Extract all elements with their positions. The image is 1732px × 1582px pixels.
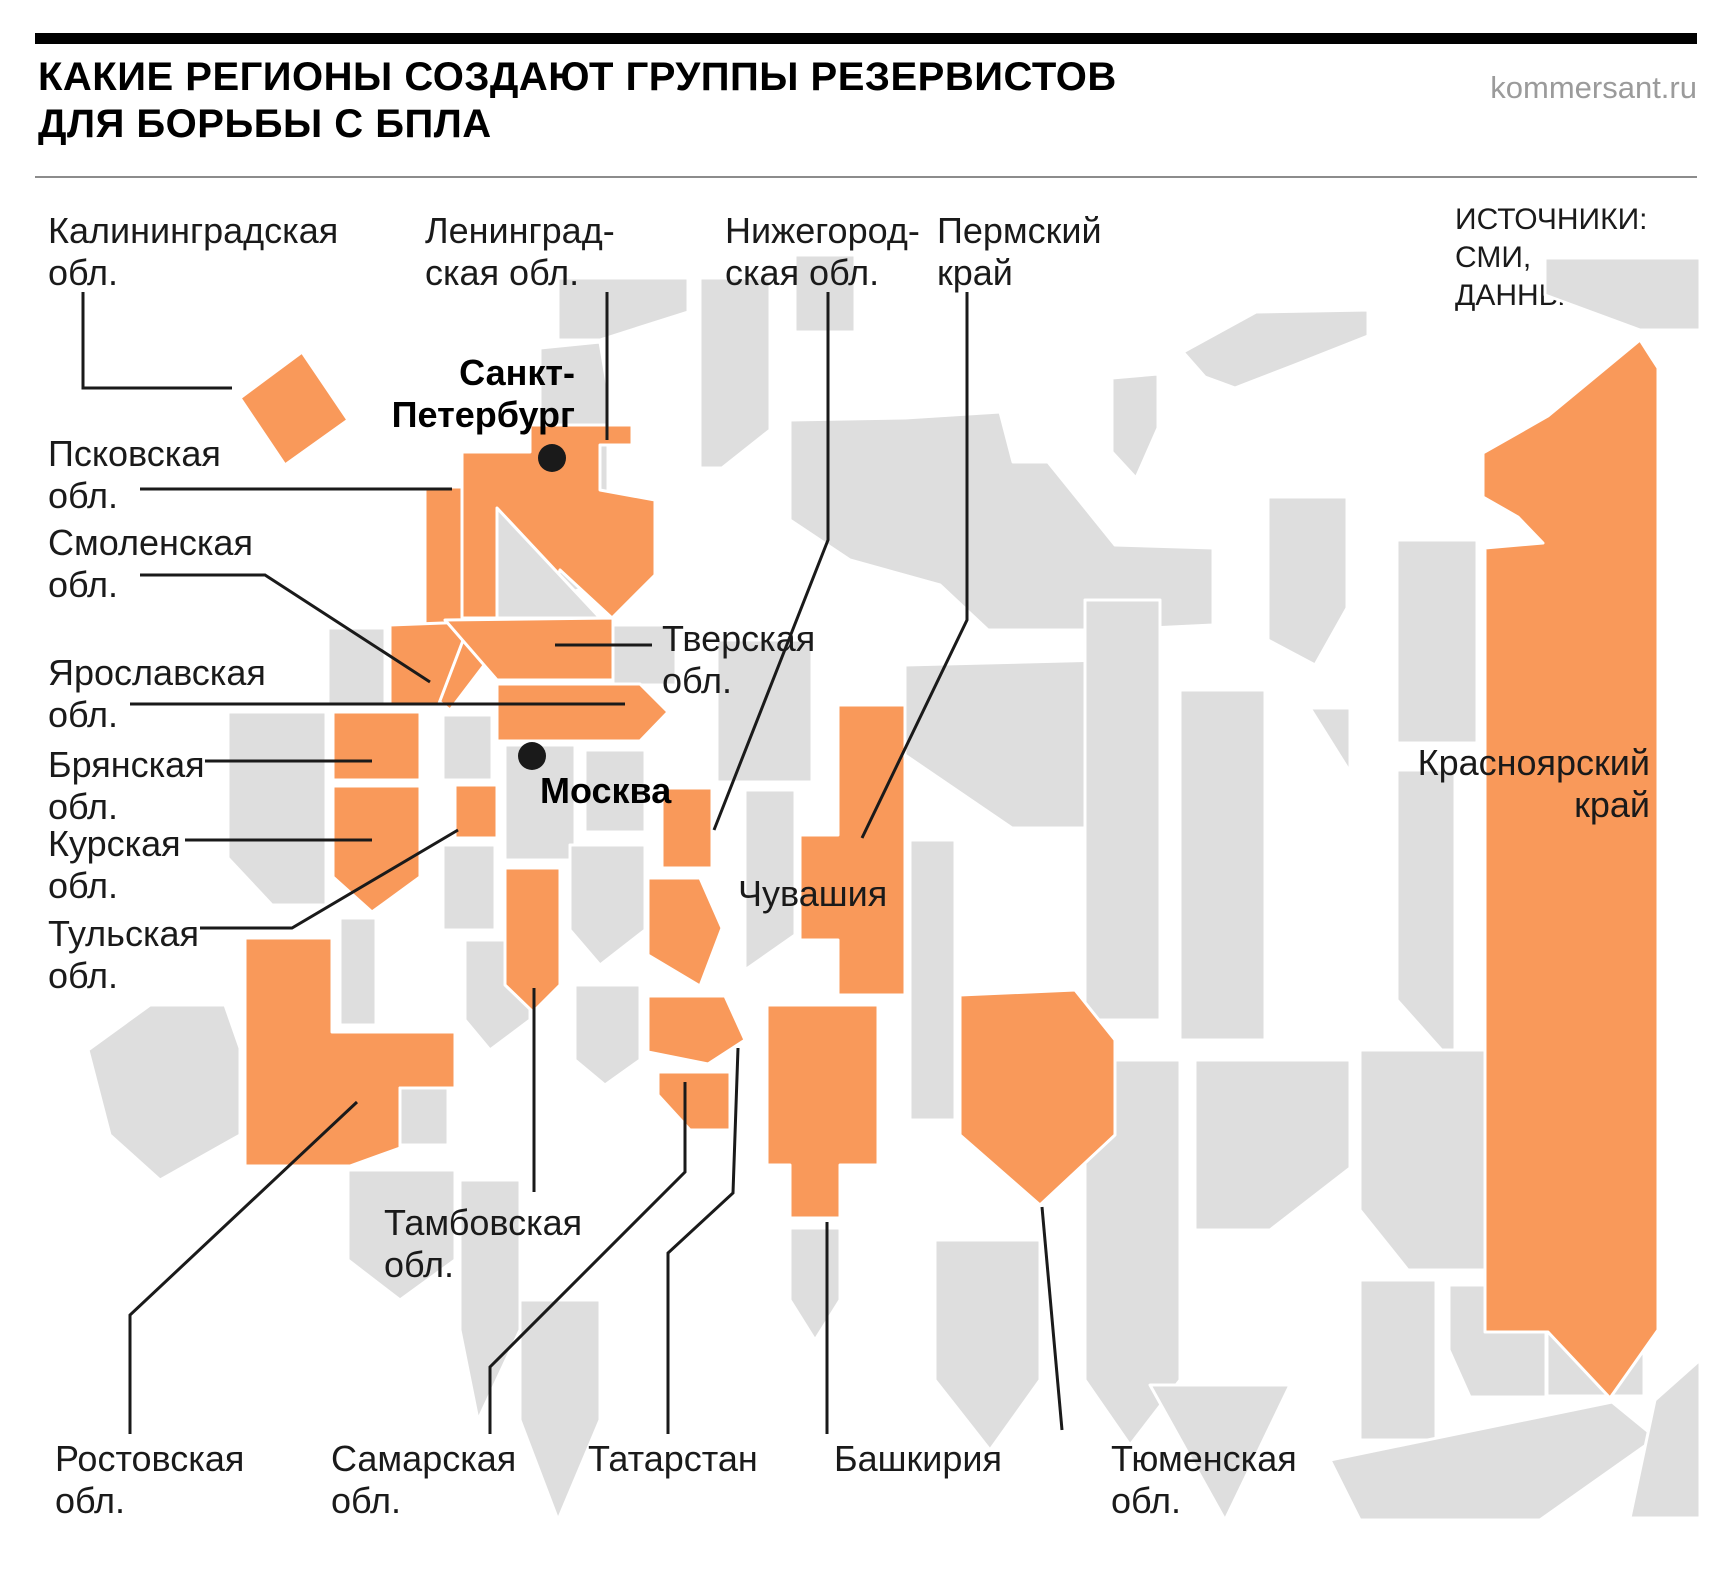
- region-gray: [1112, 374, 1158, 478]
- region-gray: [1183, 310, 1368, 388]
- label-smolensk: Смоленская обл.: [48, 522, 253, 606]
- region-chuvashia: [648, 878, 722, 986]
- region-gray: [935, 1240, 1040, 1450]
- label-tyumen: Тюменская обл.: [1111, 1438, 1297, 1522]
- label-bryansk: Брянская обл.: [48, 744, 205, 828]
- label-yaroslavl: Ярославская обл.: [48, 652, 266, 736]
- label-chuvashia: Чувашия: [738, 873, 887, 915]
- label-tatarstan: Татарстан: [588, 1438, 758, 1480]
- label-perm: Пермский край: [937, 210, 1102, 294]
- city-dot-spb: [538, 444, 566, 472]
- label-city-spb: Санкт- Петербург: [370, 352, 575, 436]
- region-tatarstan: [648, 996, 745, 1064]
- label-bashkiria: Башкирия: [834, 1438, 1002, 1480]
- leader-kaliningrad: [83, 292, 232, 388]
- region-kursk: [333, 786, 420, 912]
- infographic-page: КАКИЕ РЕГИОНЫ СОЗДАЮТ ГРУППЫ РЕЗЕРВИСТОВ…: [0, 0, 1732, 1582]
- region-gray: [443, 845, 495, 930]
- region-gray: [228, 712, 326, 905]
- region-gray: [1360, 1280, 1436, 1440]
- label-rostov: Ростовская обл.: [55, 1438, 244, 1522]
- region-tula: [455, 785, 497, 838]
- region-gray: [1268, 497, 1347, 665]
- label-kursk: Курская обл.: [48, 823, 181, 907]
- region-kaliningrad: [240, 352, 348, 465]
- region-samara: [658, 1072, 730, 1130]
- region-gray: [1180, 690, 1265, 1040]
- region-gray: [1310, 708, 1350, 772]
- region-krasnoyarsk: [1483, 340, 1658, 1398]
- label-krasnoyarsk: Красноярский край: [1350, 742, 1650, 826]
- region-gray: [443, 715, 492, 780]
- label-samara: Самарская обл.: [331, 1438, 516, 1522]
- region-gray: [328, 628, 385, 705]
- label-pskov: Псковская обл.: [48, 433, 221, 517]
- label-tula: Тульская обл.: [48, 913, 199, 997]
- leader-tyumen: [1042, 1207, 1062, 1430]
- label-tambov: Тамбовская обл.: [384, 1202, 582, 1286]
- region-gray: [1397, 540, 1477, 743]
- region-yaroslavl: [497, 684, 668, 741]
- city-dot-moscow: [518, 742, 546, 770]
- region-gray: [790, 1228, 840, 1340]
- region-bashkiria: [767, 1005, 878, 1218]
- region-gray: [575, 985, 640, 1085]
- label-tver: Тверская обл.: [662, 618, 815, 702]
- region-bryansk: [333, 712, 420, 780]
- region-gray: [400, 1088, 448, 1145]
- region-gray: [1195, 1060, 1350, 1230]
- region-perm: [800, 705, 905, 995]
- region-gray: [1085, 600, 1160, 1020]
- region-gray: [520, 1300, 600, 1520]
- region-gray: [700, 278, 770, 468]
- label-kaliningrad: Калининградская обл.: [48, 210, 338, 294]
- region-gray: [1545, 258, 1700, 330]
- region-gray: [1360, 1050, 1486, 1270]
- region-gray: [910, 840, 955, 1120]
- region-gray: [570, 845, 645, 965]
- label-city-moscow: Москва: [540, 770, 671, 812]
- label-leningrad: Ленинград- ская обл.: [425, 210, 615, 294]
- region-gray: [88, 1005, 240, 1180]
- label-nizhny: Нижегород- ская обл.: [725, 210, 920, 294]
- region-gray: [340, 918, 376, 1025]
